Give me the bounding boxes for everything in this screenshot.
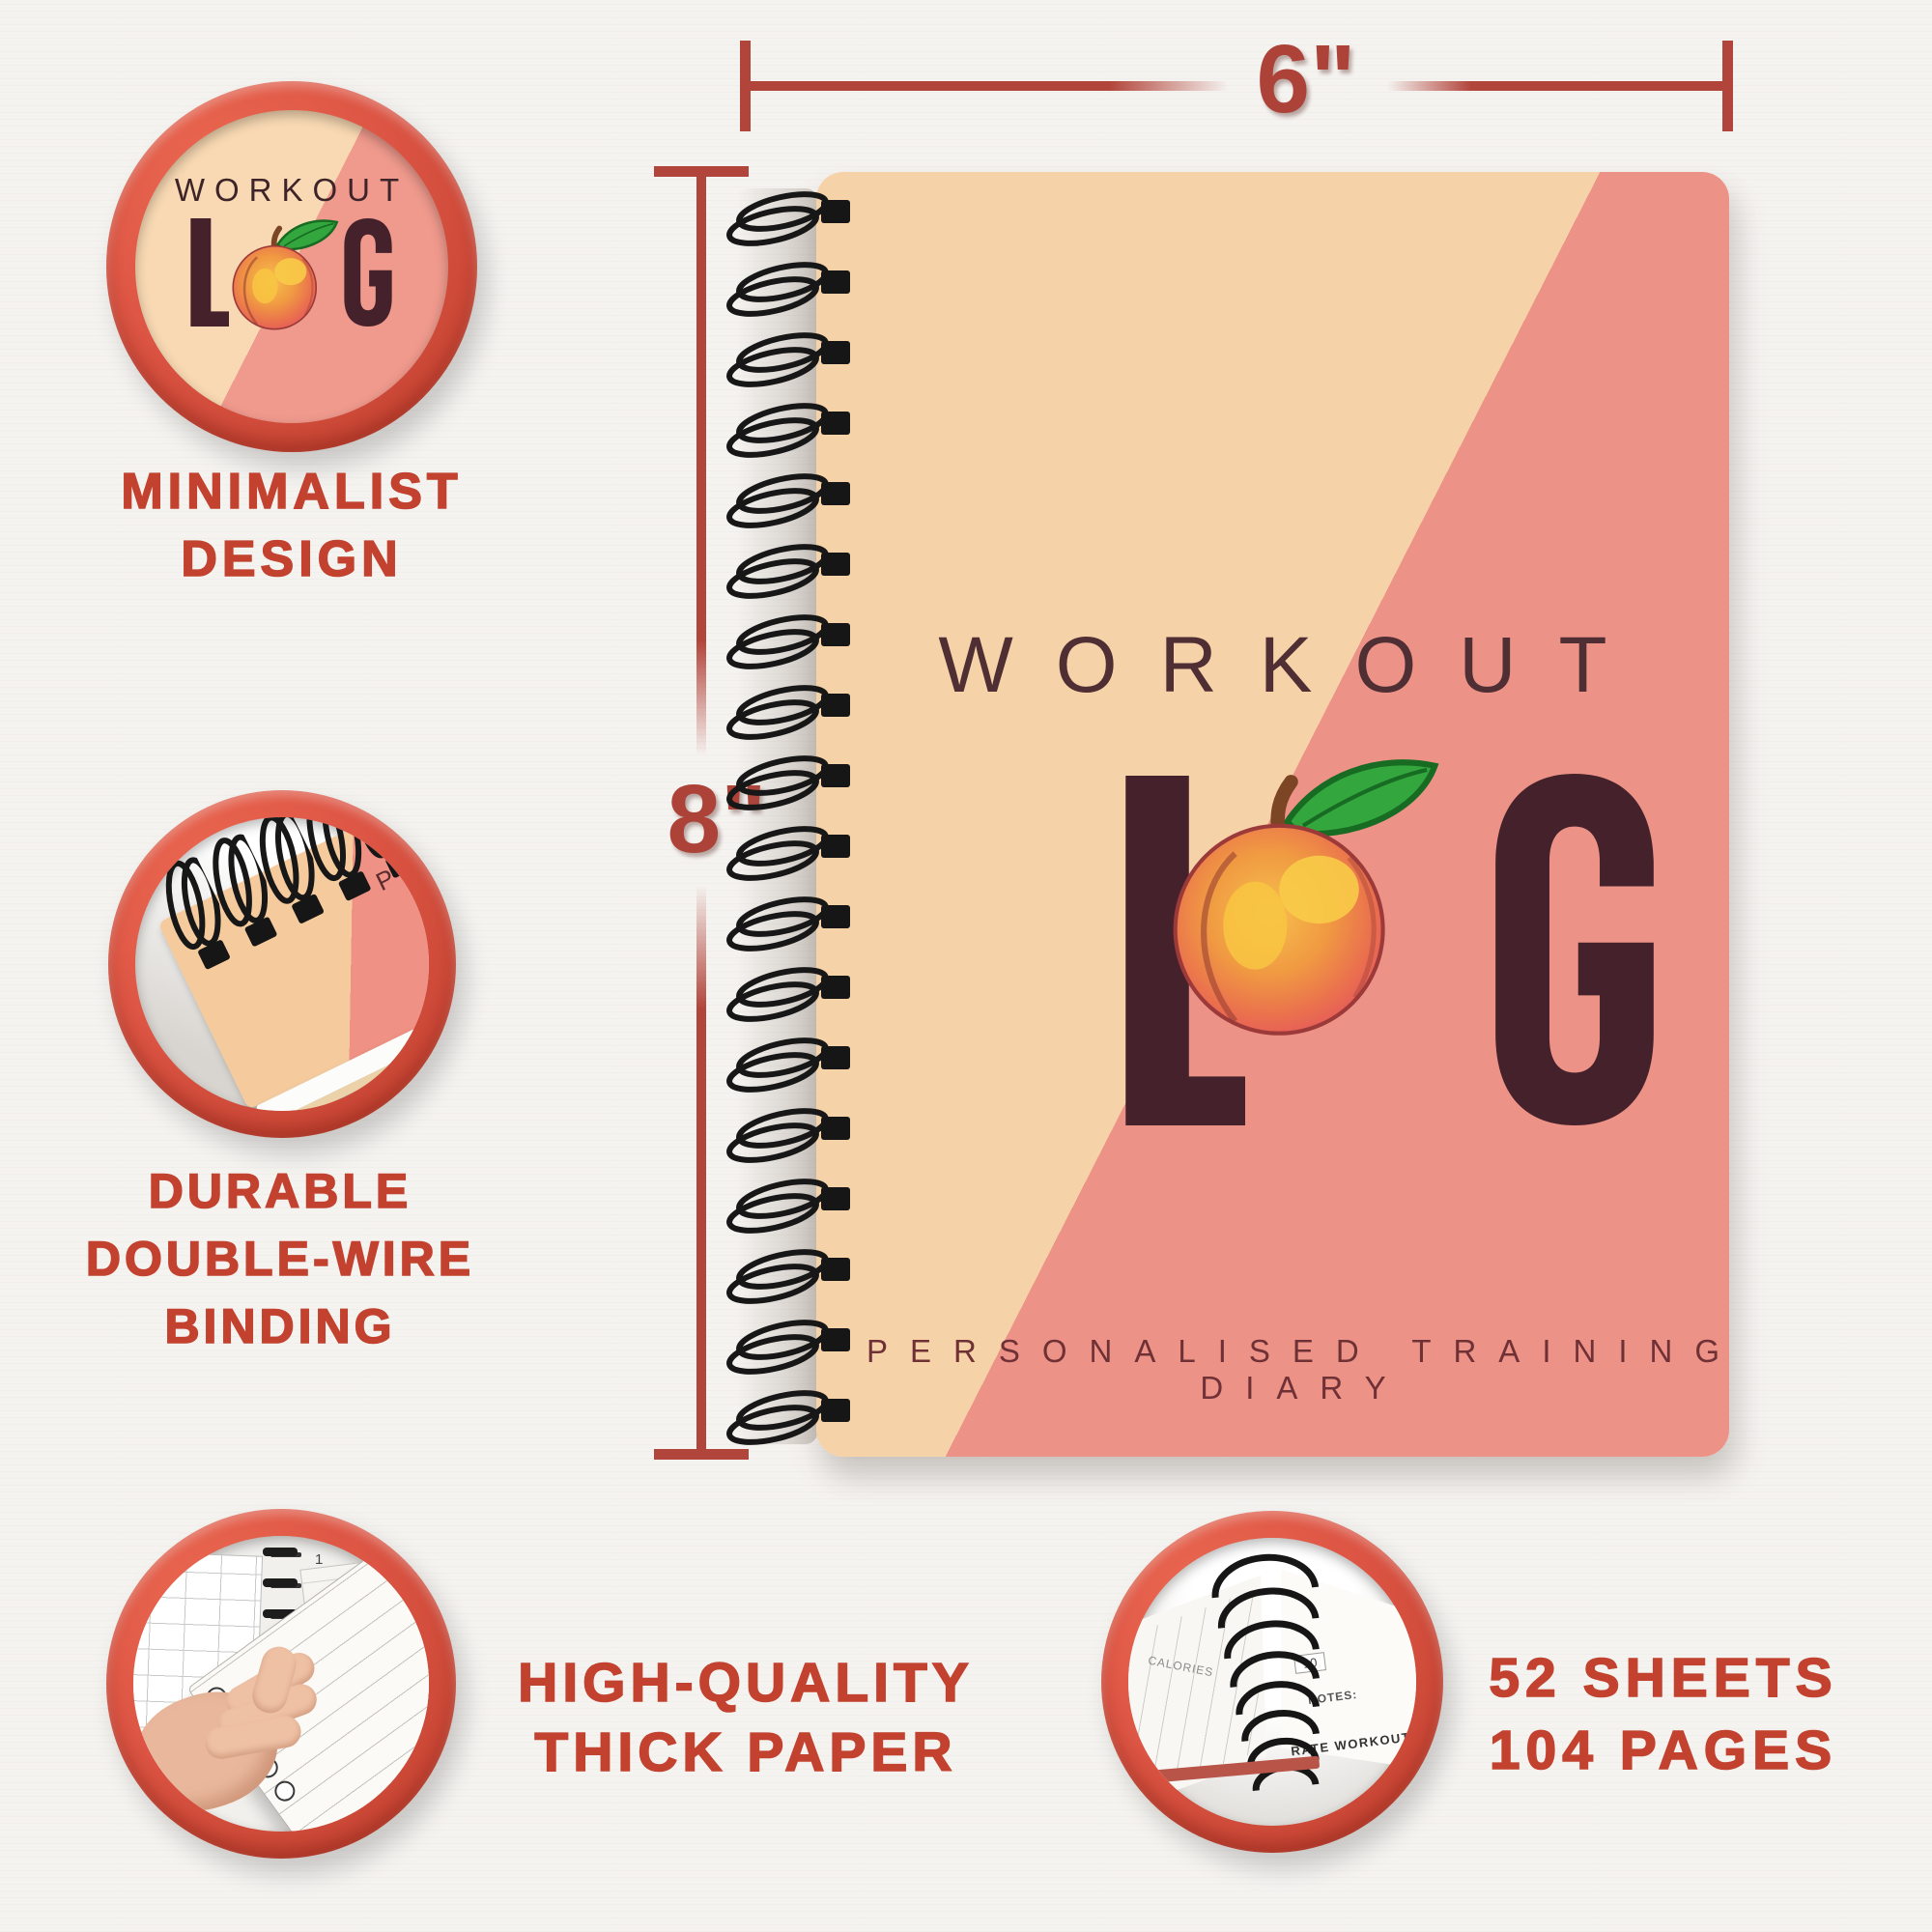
binding-notebook-corner: PER xyxy=(157,817,429,1111)
caption-line: DURABLE xyxy=(34,1157,526,1225)
badge-durable-binding: PER xyxy=(108,790,456,1138)
caption-durable-binding: DURABLE DOUBLE-WIRE BINDING xyxy=(34,1157,526,1360)
cover-subtitle: PERSONALISED TRAINING DIARY xyxy=(865,1333,1744,1406)
caption-line: HIGH-QUALITY xyxy=(456,1648,1036,1718)
product-infographic: 6" 8" WORKOUT PERSONALISED TRAINING DIAR… xyxy=(0,0,1932,1932)
caption-sheet-count: 52 SHEETS 104 PAGES xyxy=(1422,1642,1905,1787)
caption-thick-paper: HIGH-QUALITY THICK PAPER xyxy=(456,1648,1036,1787)
width-dimension-label: 6" xyxy=(1209,31,1403,128)
logo-badge-face: WORKOUT xyxy=(135,110,448,423)
logo-log-row xyxy=(135,213,448,332)
height-dim-segment-bottom xyxy=(696,885,706,1449)
spiral-binding xyxy=(724,172,881,1457)
cover-title: WORKOUT xyxy=(816,620,1729,711)
caption-line: DESIGN xyxy=(50,526,533,593)
caption-line: THICK PAPER xyxy=(456,1718,1036,1787)
height-dim-segment-top xyxy=(696,177,706,756)
width-dim-cap-right xyxy=(1722,41,1733,131)
badge-sheet-count: CALORIES 10 NOTES: RATE WORKOUT xyxy=(1101,1511,1443,1853)
badge-minimalist-design: WORKOUT xyxy=(106,81,477,452)
binding-photo: PER xyxy=(135,817,429,1111)
page-number: 1 xyxy=(315,1551,323,1568)
hand xyxy=(133,1662,346,1832)
logo-title: WORKOUT xyxy=(135,172,448,209)
caption-line: BINDING xyxy=(34,1293,526,1360)
log-letter-g xyxy=(1485,774,1664,1125)
caption-line: 52 SHEETS xyxy=(1422,1642,1905,1715)
width-dim-segment-right xyxy=(1387,81,1722,91)
badge-thick-paper: 1 2 3 DURATION xyxy=(106,1509,456,1859)
caption-line: MINIMALIST xyxy=(50,458,533,526)
peach-icon xyxy=(1155,742,1455,1041)
width-dim-cap-left xyxy=(740,41,751,131)
caption-line: 104 PAGES xyxy=(1422,1715,1905,1787)
logo-letter-l xyxy=(188,218,229,327)
sheets-photo: CALORIES 10 NOTES: RATE WORKOUT xyxy=(1128,1538,1416,1826)
paper-photo: 1 2 3 DURATION xyxy=(133,1536,429,1832)
width-dim-segment-left xyxy=(751,81,1229,91)
logo-letter-g xyxy=(341,218,395,327)
caption-minimalist-design: MINIMALIST DESIGN xyxy=(50,458,533,593)
logo-peach-icon xyxy=(225,213,345,332)
caption-line: DOUBLE-WIRE xyxy=(34,1225,526,1293)
